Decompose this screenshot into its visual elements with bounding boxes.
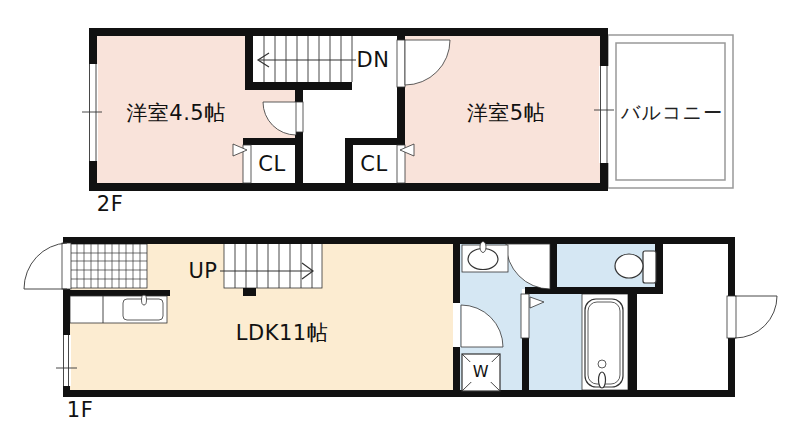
balcony-label: バルコニー [621,103,723,122]
bathroom [529,294,582,390]
room-label-west-4-5: 洋室4.5帖 [126,103,225,124]
stairs-up [220,243,322,296]
room-label-west-5: 洋室5帖 [467,103,545,124]
stairs-up-label: UP [188,261,217,282]
entrance-door [24,243,71,289]
bath-door-leaf [521,294,529,338]
room-label-ldk: LDK11帖 [236,323,328,344]
floor2-label: 2F [97,194,123,215]
floor-plan: 洋室4.5帖 DN 洋室5帖 バルコニー CL CL 2F UP LDK11帖 … [0,0,800,443]
door-leaf-room-right [397,40,405,87]
washroom-doorway [453,303,460,347]
vanity-sink [462,242,508,273]
entry-tile-grid [70,244,147,288]
floor1-label: 1F [67,400,93,421]
closet-right-label: CL [360,154,387,175]
kitchen-counter [70,290,170,323]
washer-label: W [473,364,489,380]
floor-plan-drawing [0,0,800,443]
right-entry-door [727,296,777,338]
closet-left-label: CL [258,154,285,175]
stairs-down-label: DN [357,50,390,71]
bathtub [585,299,623,388]
kitchen-faucet [142,295,147,305]
floor1-plan [24,237,777,397]
